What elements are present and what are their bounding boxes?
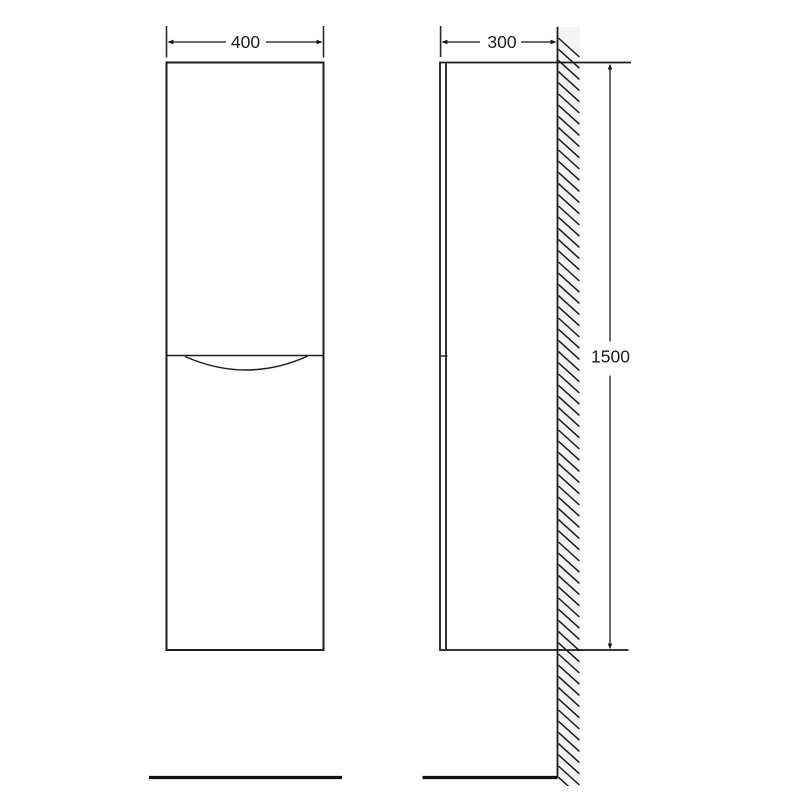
svg-text:300: 300 bbox=[487, 32, 516, 52]
svg-text:1500: 1500 bbox=[591, 347, 630, 367]
svg-text:400: 400 bbox=[231, 32, 260, 52]
